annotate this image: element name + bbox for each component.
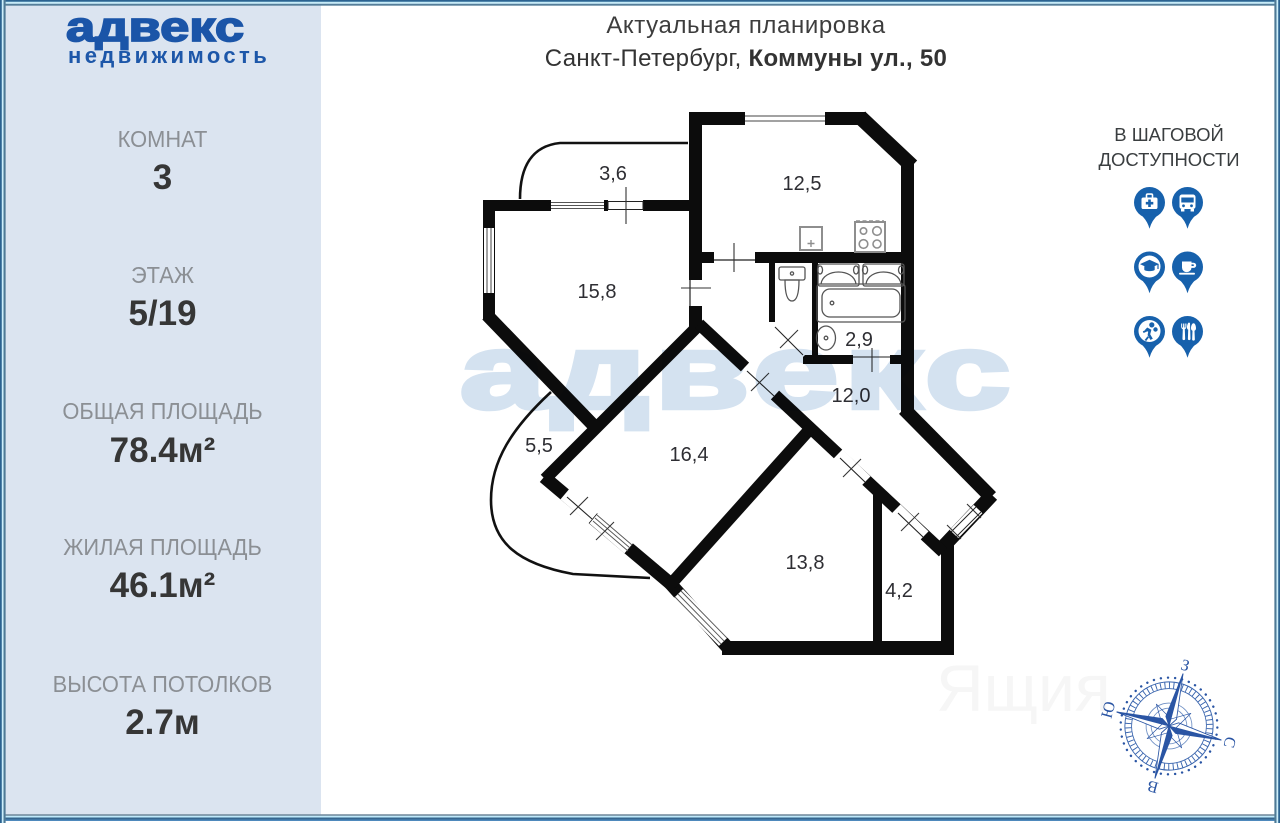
svg-text:З: З: [1179, 657, 1191, 676]
svg-text:5,5: 5,5: [525, 435, 553, 457]
svg-text:13,8: 13,8: [786, 552, 825, 574]
svg-text:В: В: [1146, 776, 1161, 795]
svg-text:4,2: 4,2: [885, 580, 913, 602]
svg-text:16,4: 16,4: [670, 444, 709, 466]
svg-text:3,6: 3,6: [599, 163, 627, 185]
svg-text:15,8: 15,8: [578, 281, 617, 303]
svg-text:12,5: 12,5: [783, 173, 822, 195]
svg-text:С: С: [1219, 735, 1238, 750]
